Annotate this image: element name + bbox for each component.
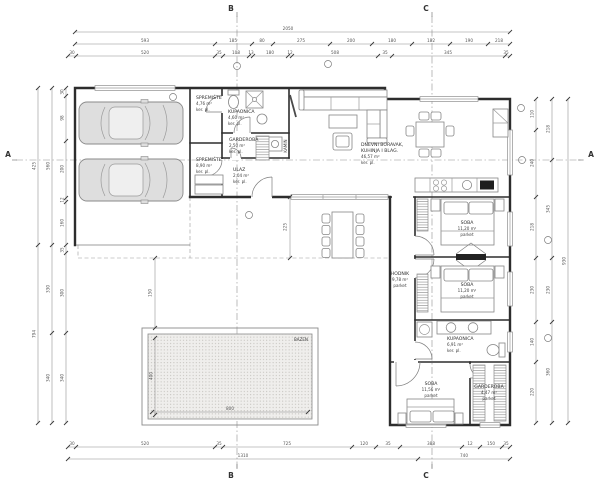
dim-label: 182	[427, 38, 435, 43]
terrace-gap-dim: 225	[283, 223, 288, 231]
wardrobe	[417, 274, 428, 312]
svg-text:11,56 m²: 11,56 m²	[422, 387, 441, 392]
dim-label: 725	[283, 441, 291, 446]
svg-text:6,91 m²: 6,91 m²	[447, 342, 463, 347]
dim-label: 180	[388, 38, 396, 43]
coffee-table	[329, 115, 357, 128]
svg-text:parket: parket	[424, 393, 438, 398]
svg-text:2,04 m²: 2,04 m²	[233, 173, 249, 178]
toilet-tank	[499, 343, 505, 357]
svg-text:ker. pl.: ker. pl.	[361, 160, 375, 165]
pillow	[433, 411, 454, 422]
washer	[417, 322, 432, 337]
chair	[356, 226, 364, 235]
dim-label: 108	[232, 50, 240, 55]
dim-label: 240	[530, 159, 535, 167]
armchair	[333, 133, 352, 150]
dim-label: 35	[503, 441, 509, 446]
chair	[406, 126, 414, 136]
toilet	[229, 96, 239, 109]
pillow	[444, 269, 468, 281]
nightstand	[495, 199, 504, 211]
svg-text:11,20 m²: 11,20 m²	[458, 288, 477, 293]
window	[95, 86, 175, 91]
pillow	[410, 411, 431, 422]
chair	[322, 214, 330, 223]
dim-label: 12	[60, 197, 65, 203]
dim-label: 230	[546, 286, 551, 294]
dim-label: 30	[69, 441, 75, 446]
chair	[322, 249, 330, 258]
svg-text:SPREMIŠTE: SPREMIŠTE	[196, 94, 222, 101]
room-label-spremiste2: SPREMIŠTE 8,90 m² ker. pl.	[196, 156, 222, 174]
svg-text:ker. pl.: ker. pl.	[447, 348, 461, 353]
svg-text:ker. pl.: ker. pl.	[228, 121, 242, 126]
svg-text:ker. pl.: ker. pl.	[233, 179, 247, 184]
dim-label: 35	[216, 50, 222, 55]
tv	[290, 95, 296, 117]
dim-chain-top: 2050 593 185 80 275 200 180 182 190 218 …	[66, 26, 512, 58]
sink	[257, 114, 267, 124]
dim-label: 35	[216, 441, 222, 446]
svg-text:9,78 m²: 9,78 m²	[392, 277, 408, 282]
dim-label: 200	[60, 165, 65, 173]
nightstand	[431, 266, 440, 278]
bedroom3	[398, 399, 463, 424]
room-label-dnevni: DNEVNI BORAVAK, KUHINJA I BLAG. 46,57 m²…	[361, 142, 404, 165]
svg-text:parket: parket	[460, 232, 474, 237]
svg-text:4,76 m²: 4,76 m²	[196, 101, 212, 106]
dim-label: 80	[259, 38, 265, 43]
svg-text:11,20 m²: 11,20 m²	[458, 226, 477, 231]
dim-label: 30	[60, 89, 65, 95]
room-label-garderoba1: GARDEROBA 2,50 m² ker. pl.	[229, 137, 259, 154]
room-label-hodnik: HODNIK 9,78 m² parket	[391, 271, 410, 288]
dining-table	[416, 122, 444, 147]
sliding-glass-door	[291, 195, 388, 200]
dim-label: 110	[530, 110, 535, 118]
svg-text:DNEVNI BORAVAK,: DNEVNI BORAVAK,	[361, 142, 404, 148]
toilet-tank	[228, 90, 239, 95]
section-marker-c-bottom: C	[423, 471, 429, 480]
dim-label: 200	[347, 38, 355, 43]
dim-label: 218	[530, 223, 535, 231]
door-arc	[396, 362, 420, 386]
section-marker-b-bottom: B	[228, 471, 234, 480]
dim-label: 190	[465, 38, 473, 43]
chair	[446, 126, 454, 136]
dim-label: 150	[487, 441, 495, 446]
dim-label: 1310	[238, 453, 249, 458]
dim-chain-right: 110 240 218 230 140 220 218 345 230 360 …	[530, 97, 571, 425]
pillow	[444, 202, 468, 214]
room-label-kupaonica1: KUPAONICA 4,60 m² ker. pl.	[228, 109, 255, 126]
dim-label: 140	[530, 338, 535, 346]
chair	[419, 112, 429, 120]
dim-label: 593	[141, 38, 149, 43]
pillow	[469, 269, 493, 281]
dim-label: 180	[266, 50, 274, 55]
dim-label: 218	[495, 38, 503, 43]
svg-text:parket: parket	[460, 294, 474, 299]
dim-label: 560	[46, 162, 51, 170]
dim-label: 35	[60, 247, 65, 253]
dim-label: 275	[297, 38, 305, 43]
dim-label: 340	[60, 374, 65, 382]
svg-text:46,57 m²: 46,57 m²	[361, 154, 380, 159]
svg-text:2,50 m²: 2,50 m²	[229, 143, 245, 148]
svg-text:parket: parket	[482, 396, 496, 401]
window-marker	[545, 237, 552, 244]
floor-plan-page: 800 400 BAZEN 150 225 2050 593 185 80 27…	[0, 0, 600, 490]
dim-label: 930	[562, 257, 567, 265]
pool-width-dim: 800	[226, 406, 234, 411]
nightstand	[495, 266, 504, 278]
window-marker	[518, 105, 525, 112]
section-marker-c-top: C	[423, 4, 429, 13]
dim-label: 218	[546, 125, 551, 133]
dim-label: 35	[503, 50, 509, 55]
dim-label: 360	[546, 368, 551, 376]
wall-unit	[456, 254, 486, 260]
dim-label: 35	[382, 50, 388, 55]
window	[420, 97, 478, 102]
svg-text:4,60 m²: 4,60 m²	[228, 115, 244, 120]
door-arc	[415, 236, 434, 255]
chair	[322, 226, 330, 235]
section-marker-a-left: A	[5, 150, 11, 159]
dim-label: 794	[32, 330, 37, 338]
storage-shelves	[195, 175, 223, 194]
dim-chain-left: 30 98 200 12 160 35 300 340 560 330 340 …	[32, 86, 69, 425]
dim-label: 30	[69, 50, 75, 55]
floor-plan-drawing: 800 400 BAZEN 150 225 2050 593 185 80 27…	[0, 0, 600, 490]
site-dims: 150 225	[148, 195, 293, 330]
dim-label: 345	[444, 50, 452, 55]
toilet	[487, 345, 499, 356]
dim-label: 12	[287, 50, 293, 55]
terrace-dining-set	[322, 212, 364, 258]
entry-door-arc	[252, 177, 272, 197]
sink	[446, 323, 456, 333]
dim-label: 2050	[283, 26, 294, 31]
nightstand	[431, 199, 440, 211]
window-marker	[545, 335, 552, 342]
svg-text:ker. pl.: ker. pl.	[196, 169, 210, 174]
window	[508, 272, 513, 306]
wardrobe	[417, 199, 428, 231]
dim-label: 98	[60, 115, 65, 121]
door-arc	[415, 342, 432, 359]
pool: 800 400 BAZEN	[142, 328, 318, 425]
tall-cabinet	[493, 109, 508, 137]
svg-text:ker. pl.: ker. pl.	[196, 107, 210, 112]
dim-label: 13	[248, 50, 254, 55]
terrace-table	[332, 212, 353, 258]
dim-label: 230	[530, 286, 535, 294]
dim-label: 12	[467, 441, 473, 446]
dining-set	[406, 112, 454, 157]
svg-text:ker. pl.: ker. pl.	[229, 149, 243, 154]
dim-chain-bottom: 30 520 35 725 120 35 388 12 150 35 1310 …	[66, 441, 512, 461]
dim-label: 185	[229, 38, 237, 43]
vanity-counter	[437, 321, 491, 334]
window-marker	[170, 94, 177, 101]
chair	[322, 237, 330, 246]
dim-label: 740	[460, 453, 468, 458]
nightstand	[455, 413, 463, 424]
dim-label: 160	[60, 219, 65, 227]
room-label-spremiste1: SPREMIŠTE 4,76 m² ker. pl.	[196, 94, 222, 112]
chair	[356, 249, 364, 258]
dim-label: 388	[427, 441, 435, 446]
sink	[468, 323, 478, 333]
dim-label: 330	[46, 285, 51, 293]
pool-gap-dim: 150	[148, 289, 153, 297]
pool-label: BAZEN	[294, 337, 308, 342]
room-label-kupaonica2: KUPAONICA 6,91 m² ker. pl.	[447, 336, 474, 353]
chair	[419, 149, 429, 157]
car	[79, 100, 183, 147]
svg-text:parket: parket	[393, 283, 407, 288]
window	[508, 332, 513, 352]
chair	[431, 149, 441, 157]
dim-label: 345	[546, 205, 551, 213]
kitchen-sink	[462, 180, 471, 189]
chair	[431, 112, 441, 120]
window	[480, 423, 500, 428]
pool-height-dim: 400	[149, 372, 154, 380]
section-marker-a-right: A	[588, 150, 594, 159]
dim-label: 35	[385, 441, 391, 446]
car	[79, 157, 183, 204]
dim-label: 520	[141, 441, 149, 446]
shower	[246, 91, 263, 108]
garage	[79, 100, 183, 204]
nightstand	[398, 413, 406, 424]
fireplace	[268, 137, 282, 151]
chair	[356, 214, 364, 223]
section-marker-b-top: B	[228, 4, 234, 13]
window-marker	[246, 212, 253, 219]
svg-text:SPREMIŠTE: SPREMIŠTE	[196, 156, 222, 163]
dim-label: 508	[331, 50, 339, 55]
chair	[356, 237, 364, 246]
window	[508, 212, 513, 246]
room-label-soba3: SOBA 11,56 m² parket	[422, 381, 441, 398]
dim-label: 220	[530, 388, 535, 396]
dim-label: 340	[46, 374, 51, 382]
svg-text:4,47 m²: 4,47 m²	[481, 390, 497, 395]
pillow	[469, 202, 493, 214]
dim-label: 425	[32, 162, 37, 170]
svg-text:8,90 m²: 8,90 m²	[196, 163, 212, 168]
dim-label: 520	[141, 50, 149, 55]
room-label-ulaz: ULAZ 2,04 m² ker. pl.	[233, 167, 249, 184]
window-marker	[325, 61, 332, 68]
kamin-label: KAMIN	[283, 139, 288, 152]
cooktop	[480, 181, 494, 190]
dim-label: 120	[360, 441, 368, 446]
dim-label: 300	[60, 289, 65, 297]
